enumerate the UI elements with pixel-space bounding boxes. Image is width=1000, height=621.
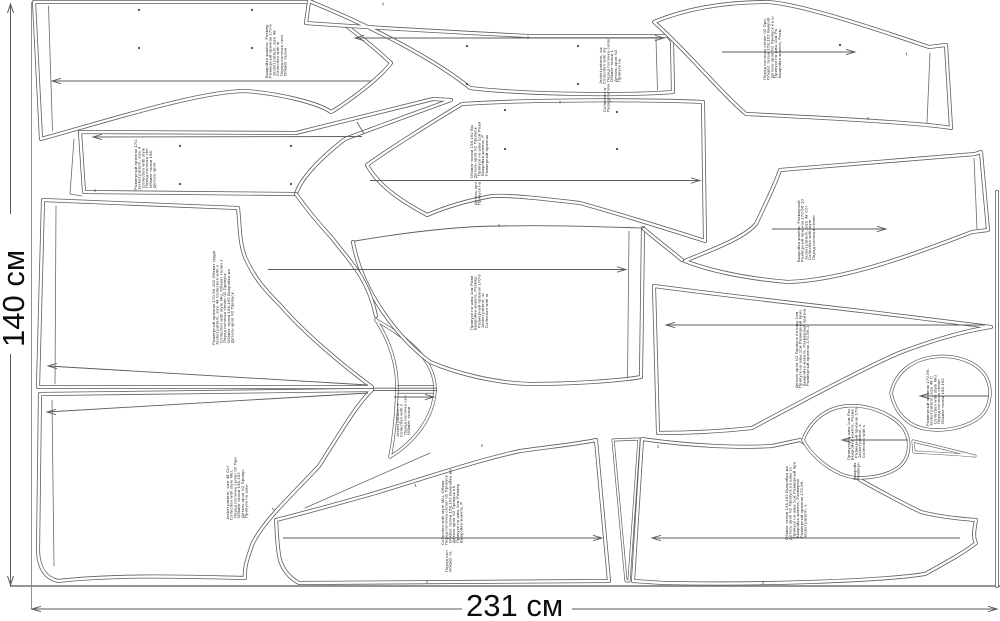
svg-text:Припуск на: Припуск на	[477, 181, 482, 205]
svg-text:Collection with s: Collection with s	[861, 425, 866, 458]
svg-text:Обхват талии 158,162: Обхват талии 158,162	[940, 378, 945, 424]
svg-text:Деталь кроя: Деталь кроя	[152, 163, 157, 188]
svg-text:Перед полочк: Перед полочк	[606, 83, 611, 112]
svg-text:Перед полочка center: Перед полочка center	[811, 214, 816, 260]
svg-text:Выкройка жакета, Разм: Выкройка жакета, Разм	[777, 29, 782, 78]
svg-text:Выкройка жакета, Р: Выкройка жакета, Р	[459, 502, 464, 543]
svg-text:Размерный признак 170-96-1: Размерный признак 170-96-1	[805, 325, 810, 386]
svg-text:Обхват талии: Обхват талии	[406, 407, 411, 435]
svg-text:Collection with st: Collection with st	[484, 293, 489, 328]
svg-text:Припуск на: Припуск на	[617, 58, 622, 82]
svg-text:231 см: 231 см	[466, 588, 563, 621]
svg-text:Обхват та: Обхват та	[448, 551, 453, 572]
svg-text:Обхват талии: Обхват талии	[283, 48, 288, 76]
svg-text:Jacket pattern, s: Jacket pattern, s	[803, 504, 808, 538]
svg-text:Размерный признак: Размерный признак	[484, 135, 489, 176]
svg-text:Припуск на швы: Припуск на швы	[244, 484, 249, 518]
svg-text:140 см: 140 см	[0, 250, 31, 347]
svg-text:Размерн: Размерн	[856, 462, 861, 480]
svg-text:Деталь кроя N2 Припуск: Деталь кроя N2 Припуск	[230, 292, 235, 343]
